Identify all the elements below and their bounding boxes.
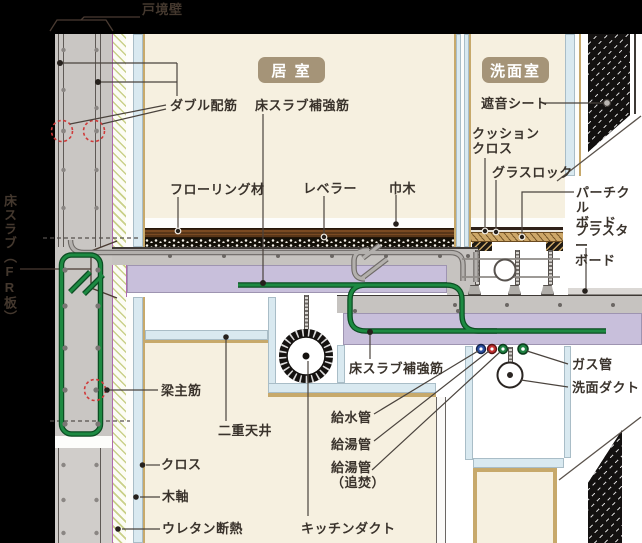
label-urethane: ウレタン断熱 bbox=[162, 521, 243, 536]
label-hot-water: 給湯管 bbox=[331, 437, 372, 452]
tosakai-bracket bbox=[50, 20, 113, 31]
living-room-badge-label: 居 室 bbox=[271, 60, 311, 81]
gas-pipe bbox=[518, 344, 528, 354]
label-plaster-board: プラスター ボード bbox=[575, 223, 642, 268]
beam-main-bar-dots bbox=[62, 267, 100, 426]
fr-slab-brace bbox=[91, 241, 117, 298]
floor-void-pipe bbox=[495, 260, 516, 281]
label-kitchen-duct: キッチンダクト bbox=[301, 521, 396, 536]
label-tosakai-wall: 戸境壁 bbox=[142, 2, 183, 17]
sound-sheet-marker bbox=[604, 100, 611, 107]
label-glass-rock: グラスロック bbox=[492, 165, 573, 180]
washroom-badge-label: 洗面室 bbox=[490, 60, 541, 81]
living-room-badge: 居 室 bbox=[258, 57, 325, 83]
label-double-ceiling: 二重天井 bbox=[218, 423, 272, 438]
washroom-duct bbox=[498, 363, 523, 388]
label-sound-sheet: 遮音シート bbox=[481, 96, 549, 111]
section-diagram: 居 室 洗面室 戸境壁 床スラブ（FR板） ダブル配筋 床スラブ補強筋 フローリ… bbox=[0, 0, 642, 543]
label-washroom-duct: 洗面ダクト bbox=[572, 380, 640, 395]
label-reheating: 給湯管 （追焚） bbox=[331, 460, 385, 490]
leader-dots-ringed bbox=[175, 228, 525, 240]
label-gas-pipe: ガス管 bbox=[572, 357, 613, 372]
label-cross: クロス bbox=[161, 457, 202, 472]
existing-rebar-gray bbox=[71, 240, 477, 282]
label-beam-main-bar: 梁主筋 bbox=[161, 383, 202, 398]
label-leveler: レベラー bbox=[303, 181, 357, 196]
washroom-badge: 洗面室 bbox=[482, 57, 549, 83]
wall-rebar-dots bbox=[61, 48, 99, 535]
hot-water-pipe bbox=[488, 345, 497, 354]
break-line bbox=[559, 417, 641, 480]
label-habaki: 巾木 bbox=[389, 181, 416, 196]
label-water-supply: 給水管 bbox=[331, 410, 372, 425]
water-supply-pipe bbox=[477, 345, 486, 354]
label-cushion-cloth: クッション クロス bbox=[472, 126, 540, 156]
label-double-rebar: ダブル配筋 bbox=[170, 98, 238, 113]
label-slab-rebar-bottom: 床スラブ補強筋 bbox=[349, 361, 444, 376]
label-wood-frame: 木軸 bbox=[162, 489, 189, 504]
label-slab-rebar-top: 床スラブ補強筋 bbox=[255, 98, 350, 113]
label-flooring: フローリング材 bbox=[170, 182, 265, 197]
label-floor-slab-fr: 床スラブ（FR板） bbox=[2, 194, 17, 344]
kitchen-duct bbox=[283, 333, 329, 379]
